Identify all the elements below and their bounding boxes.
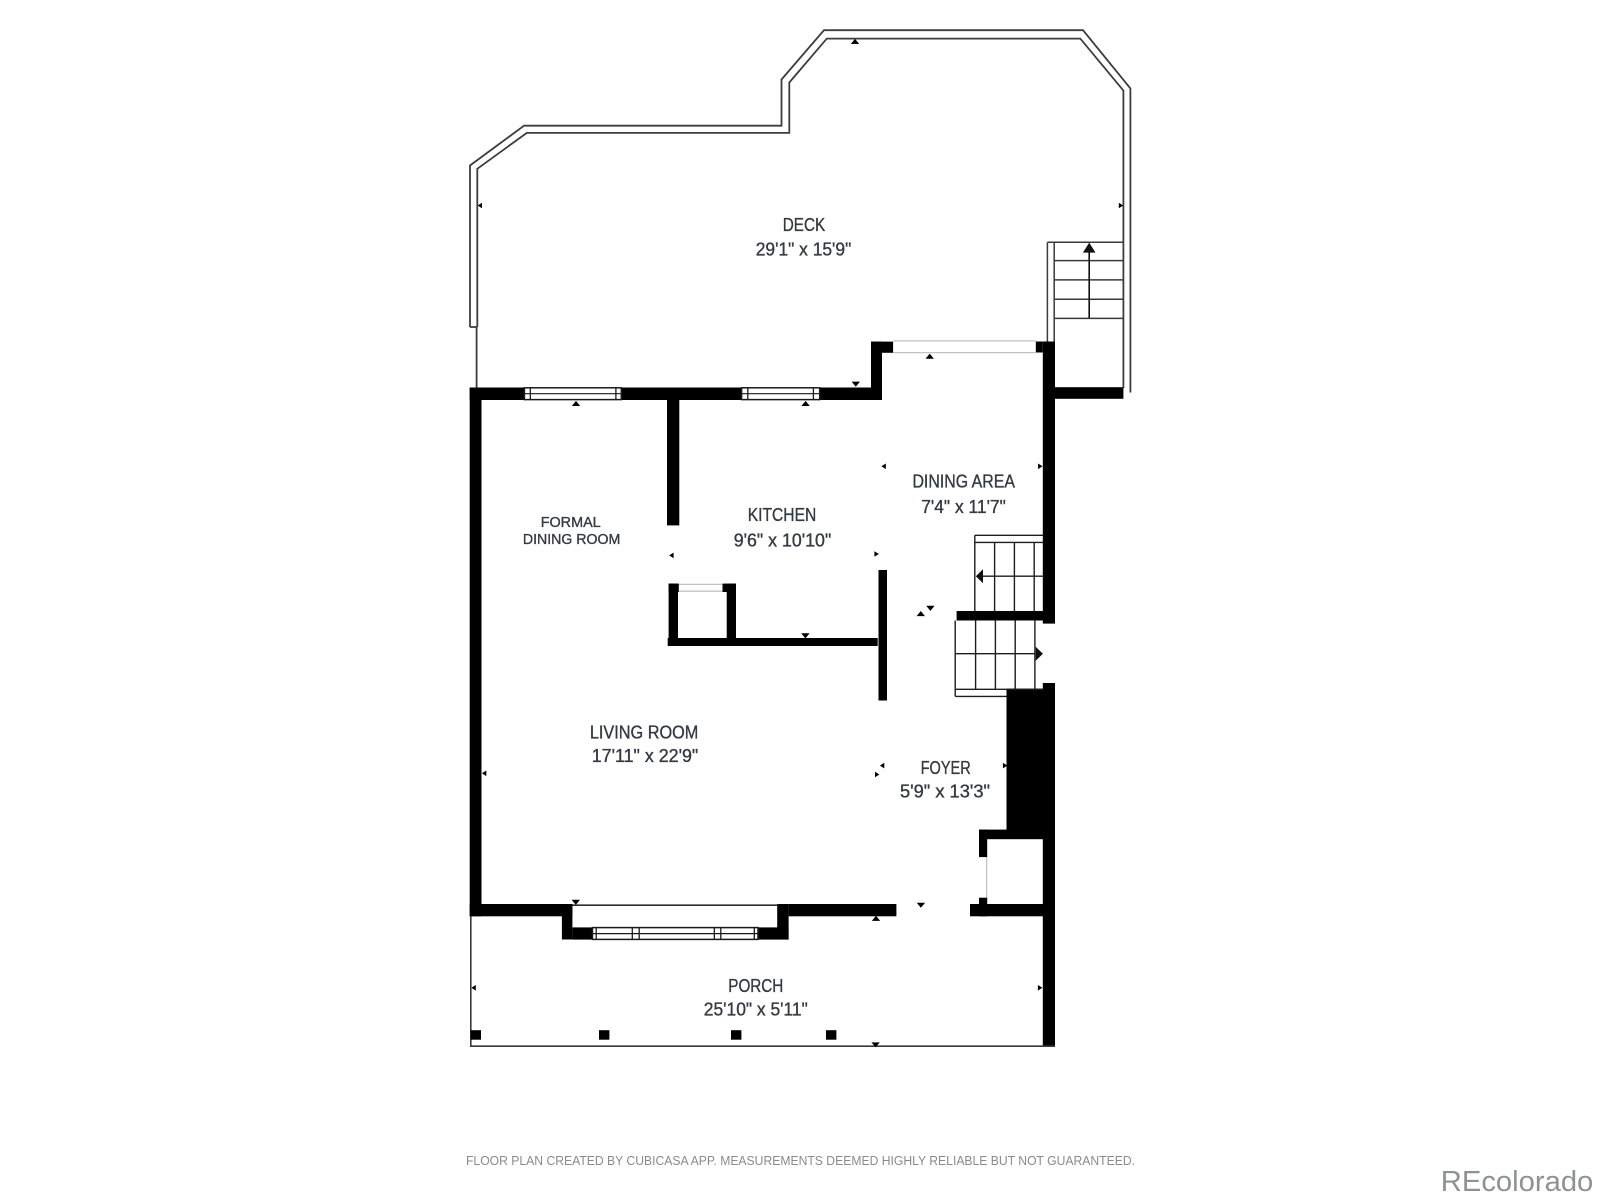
svg-text:LIVING ROOM: LIVING ROOM bbox=[590, 723, 699, 743]
svg-text:FOYER: FOYER bbox=[921, 758, 971, 778]
svg-text:7'4" x 11'7": 7'4" x 11'7" bbox=[921, 497, 1006, 517]
svg-text:DECK: DECK bbox=[783, 215, 826, 235]
svg-text:25'10" x 5'11": 25'10" x 5'11" bbox=[704, 1000, 808, 1020]
svg-text:DINING AREA: DINING AREA bbox=[912, 472, 1015, 492]
svg-text:17'11" x 22'9": 17'11" x 22'9" bbox=[592, 746, 699, 766]
svg-text:FORMAL: FORMAL bbox=[541, 514, 601, 531]
svg-text:5'9" x 13'3": 5'9" x 13'3" bbox=[900, 782, 990, 802]
svg-text:KITCHEN: KITCHEN bbox=[748, 505, 817, 525]
svg-text:REcolorado: REcolorado bbox=[1441, 1166, 1594, 1198]
svg-text:29'1" x 15'9": 29'1" x 15'9" bbox=[756, 240, 852, 260]
svg-text:PORCH: PORCH bbox=[728, 976, 783, 996]
svg-text:9'6" x 10'10": 9'6" x 10'10" bbox=[734, 531, 832, 551]
svg-text:FLOOR PLAN CREATED BY CUBICASA: FLOOR PLAN CREATED BY CUBICASA APP. MEAS… bbox=[466, 1153, 1135, 1168]
svg-text:DINING ROOM: DINING ROOM bbox=[523, 531, 621, 548]
